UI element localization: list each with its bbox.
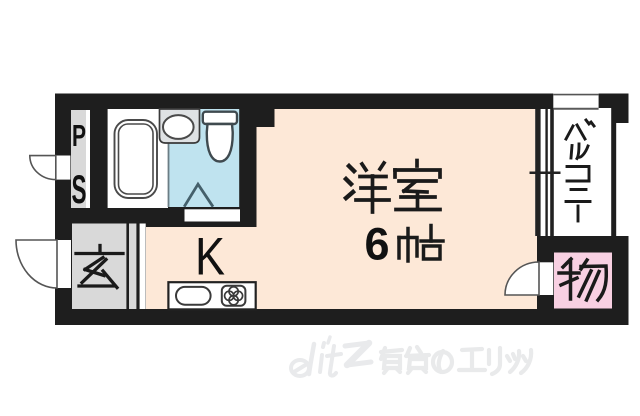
svg-text:6: 6 xyxy=(364,219,389,270)
svg-text:S: S xyxy=(72,168,87,212)
svg-text:P: P xyxy=(72,118,86,153)
svg-text:K: K xyxy=(195,228,225,287)
